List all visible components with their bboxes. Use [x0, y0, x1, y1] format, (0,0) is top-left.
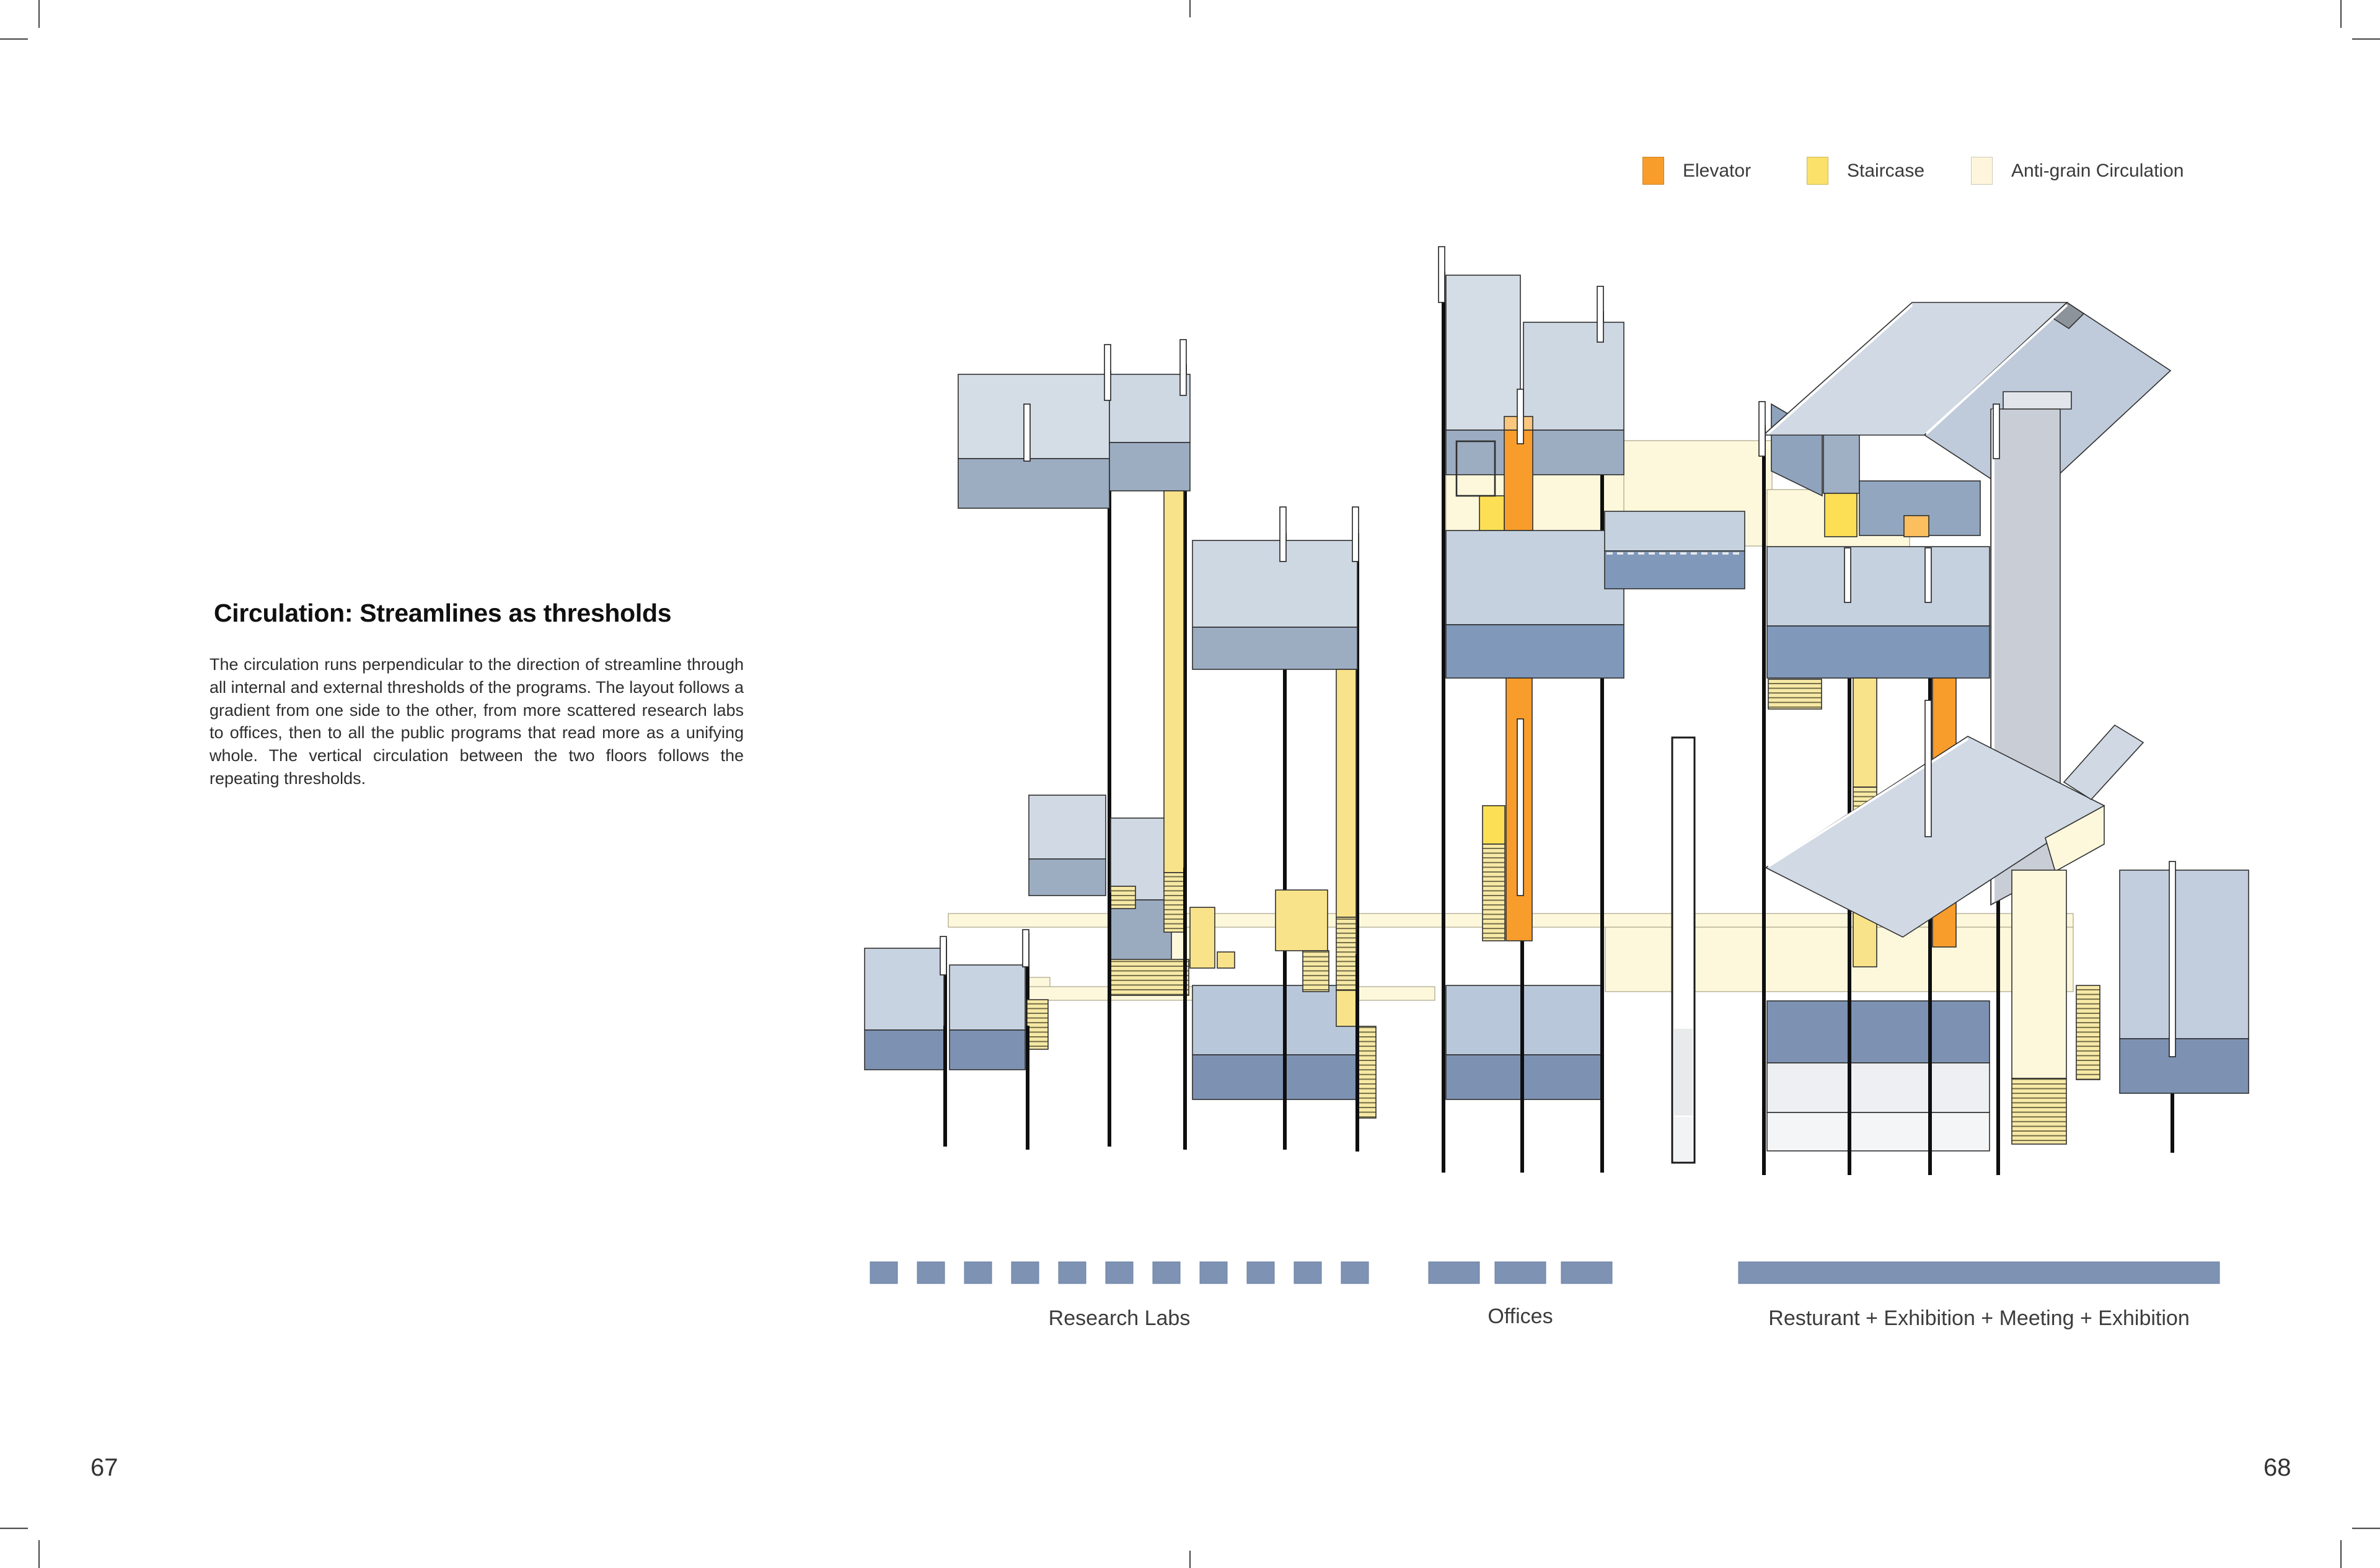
program-label-restaurant-exhibition: Resturant + Exhibition + Meeting + Exhib… [1768, 1306, 2189, 1331]
anti-grain-swatch-icon [1971, 157, 1993, 185]
page-number-left: 67 [90, 1454, 118, 1482]
service-tower [1672, 738, 1695, 1163]
page-number-right: 68 [2263, 1454, 2291, 1482]
staircase-swatch-icon [1807, 157, 1828, 185]
legend-item-elevator: Elevator [1642, 157, 1751, 185]
legend-label: Elevator [1683, 161, 1751, 182]
body-paragraph: The circulation runs perpendicular to th… [209, 653, 744, 790]
elevator-swatch-icon [1642, 157, 1664, 185]
program-bars [870, 1262, 2219, 1284]
legend-label: Staircase [1847, 161, 1924, 182]
portfolio-spread: Circulation: Streamlines as thresholds T… [0, 0, 2380, 1568]
program-label-offices: Offices [1487, 1305, 1553, 1329]
program-label-research-labs: Research Labs [1049, 1306, 1191, 1331]
research-labs-cluster [865, 374, 1376, 1118]
legend-item-staircase: Staircase [1807, 157, 1924, 185]
page-title: Circulation: Streamlines as thresholds [214, 599, 671, 628]
legend-label: Anti-grain Circulation [2011, 161, 2184, 182]
legend-item-anti-grain-circulation: Anti-grain Circulation [1971, 157, 2184, 185]
